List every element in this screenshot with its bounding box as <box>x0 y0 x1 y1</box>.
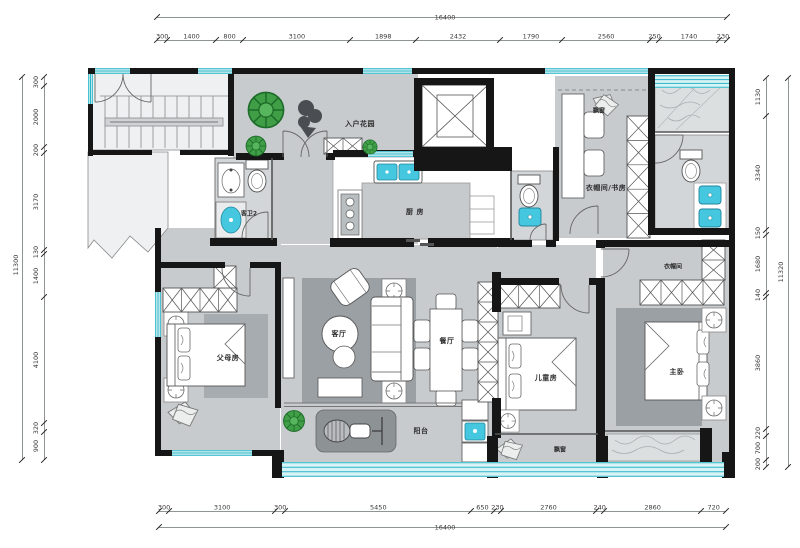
dim-label: 1790 <box>523 34 540 41</box>
dim-label: 900 <box>33 440 40 452</box>
dim-label: 300 <box>274 505 286 512</box>
kids-wardrobe <box>498 284 560 308</box>
dim-label: 300 <box>156 34 168 41</box>
closet-wardrobe <box>640 280 724 305</box>
dim-label: 240 <box>593 505 605 512</box>
dim-label: 230 <box>491 505 503 512</box>
label-parents-room: 父母房 <box>217 353 240 363</box>
label-living-room: 客厅 <box>332 329 347 339</box>
dim-mark <box>788 78 789 467</box>
dim-label: 200 <box>33 144 40 156</box>
dim-label: 1400 <box>183 34 200 41</box>
dim-label: 700 <box>755 442 762 454</box>
dim-label: 300 <box>33 75 40 87</box>
dim-label: 3340 <box>755 165 762 182</box>
dim-label: 1400 <box>33 268 40 285</box>
label-bay-window: 飘窗 <box>554 445 566 454</box>
study-wardrobe <box>627 116 650 238</box>
label-master-room: 主卧 <box>670 367 685 377</box>
dim-label: 720 <box>707 505 719 512</box>
dim-label: 200 <box>755 457 762 469</box>
dim-label: 140 <box>755 289 762 301</box>
floor-plan-canvas: 入户花园 厨 房 客卫2 飘窗 衣帽间/书房 衣帽间 客厅 餐厅 父母房 儿童房… <box>0 0 800 548</box>
dim-label: 11320 <box>778 262 785 283</box>
dim-label: 300 <box>158 505 170 512</box>
dim-label: 1680 <box>755 256 762 273</box>
dim-label: 3170 <box>33 194 40 211</box>
dim-label: 130 <box>33 246 40 258</box>
label-kitchen: 厨 房 <box>406 207 424 217</box>
dim-label: 2860 <box>644 505 661 512</box>
dim-label: 16400 <box>435 525 456 532</box>
dim-label: 4100 <box>33 352 40 369</box>
dim-mark <box>22 77 23 460</box>
living-room-furniture <box>283 266 416 403</box>
dim-label: 150 <box>755 227 762 239</box>
dim-label: 16400 <box>435 15 456 22</box>
dim-label: 1740 <box>681 34 698 41</box>
parents-wardrobe <box>163 288 237 312</box>
dim-mark <box>159 511 726 512</box>
dim-label: 250 <box>648 34 660 41</box>
label-entry-garden: 入户花园 <box>345 119 375 129</box>
dim-mark <box>44 77 45 460</box>
dim-label: 320 <box>33 421 40 433</box>
dim-label: 220 <box>755 426 762 438</box>
label-kids-room: 儿童房 <box>535 373 558 383</box>
dim-label: 800 <box>223 34 235 41</box>
floor-plan-drawing <box>0 0 800 548</box>
dim-label: 650 <box>476 505 488 512</box>
dim-label: 3100 <box>289 34 306 41</box>
label-study-closet: 衣帽间/书房 <box>586 183 627 193</box>
dim-label: 230 <box>717 34 729 41</box>
dim-label: 11300 <box>13 255 20 276</box>
label-study-bay-window: 飘窗 <box>593 106 605 115</box>
dim-mark <box>766 78 767 467</box>
dim-label: 2432 <box>450 34 467 41</box>
dim-label: 1898 <box>375 34 392 41</box>
dim-label: 2000 <box>33 108 40 125</box>
dim-label: 1130 <box>755 89 762 106</box>
elevator-shaft <box>422 85 488 147</box>
corridor-bath-fixtures <box>518 175 541 226</box>
dim-label: 2560 <box>598 34 615 41</box>
dim-label: 5450 <box>370 505 387 512</box>
parents-wardrobe-corner <box>214 266 236 288</box>
label-closet: 衣帽间 <box>664 262 682 271</box>
dim-label: 3100 <box>214 505 231 512</box>
dim-label: 2760 <box>540 505 557 512</box>
dim-label: 3860 <box>755 355 762 372</box>
label-dining-room: 餐厅 <box>440 336 455 346</box>
label-guest-bath2: 客卫2 <box>241 209 257 218</box>
label-balcony: 阳台 <box>414 426 429 436</box>
